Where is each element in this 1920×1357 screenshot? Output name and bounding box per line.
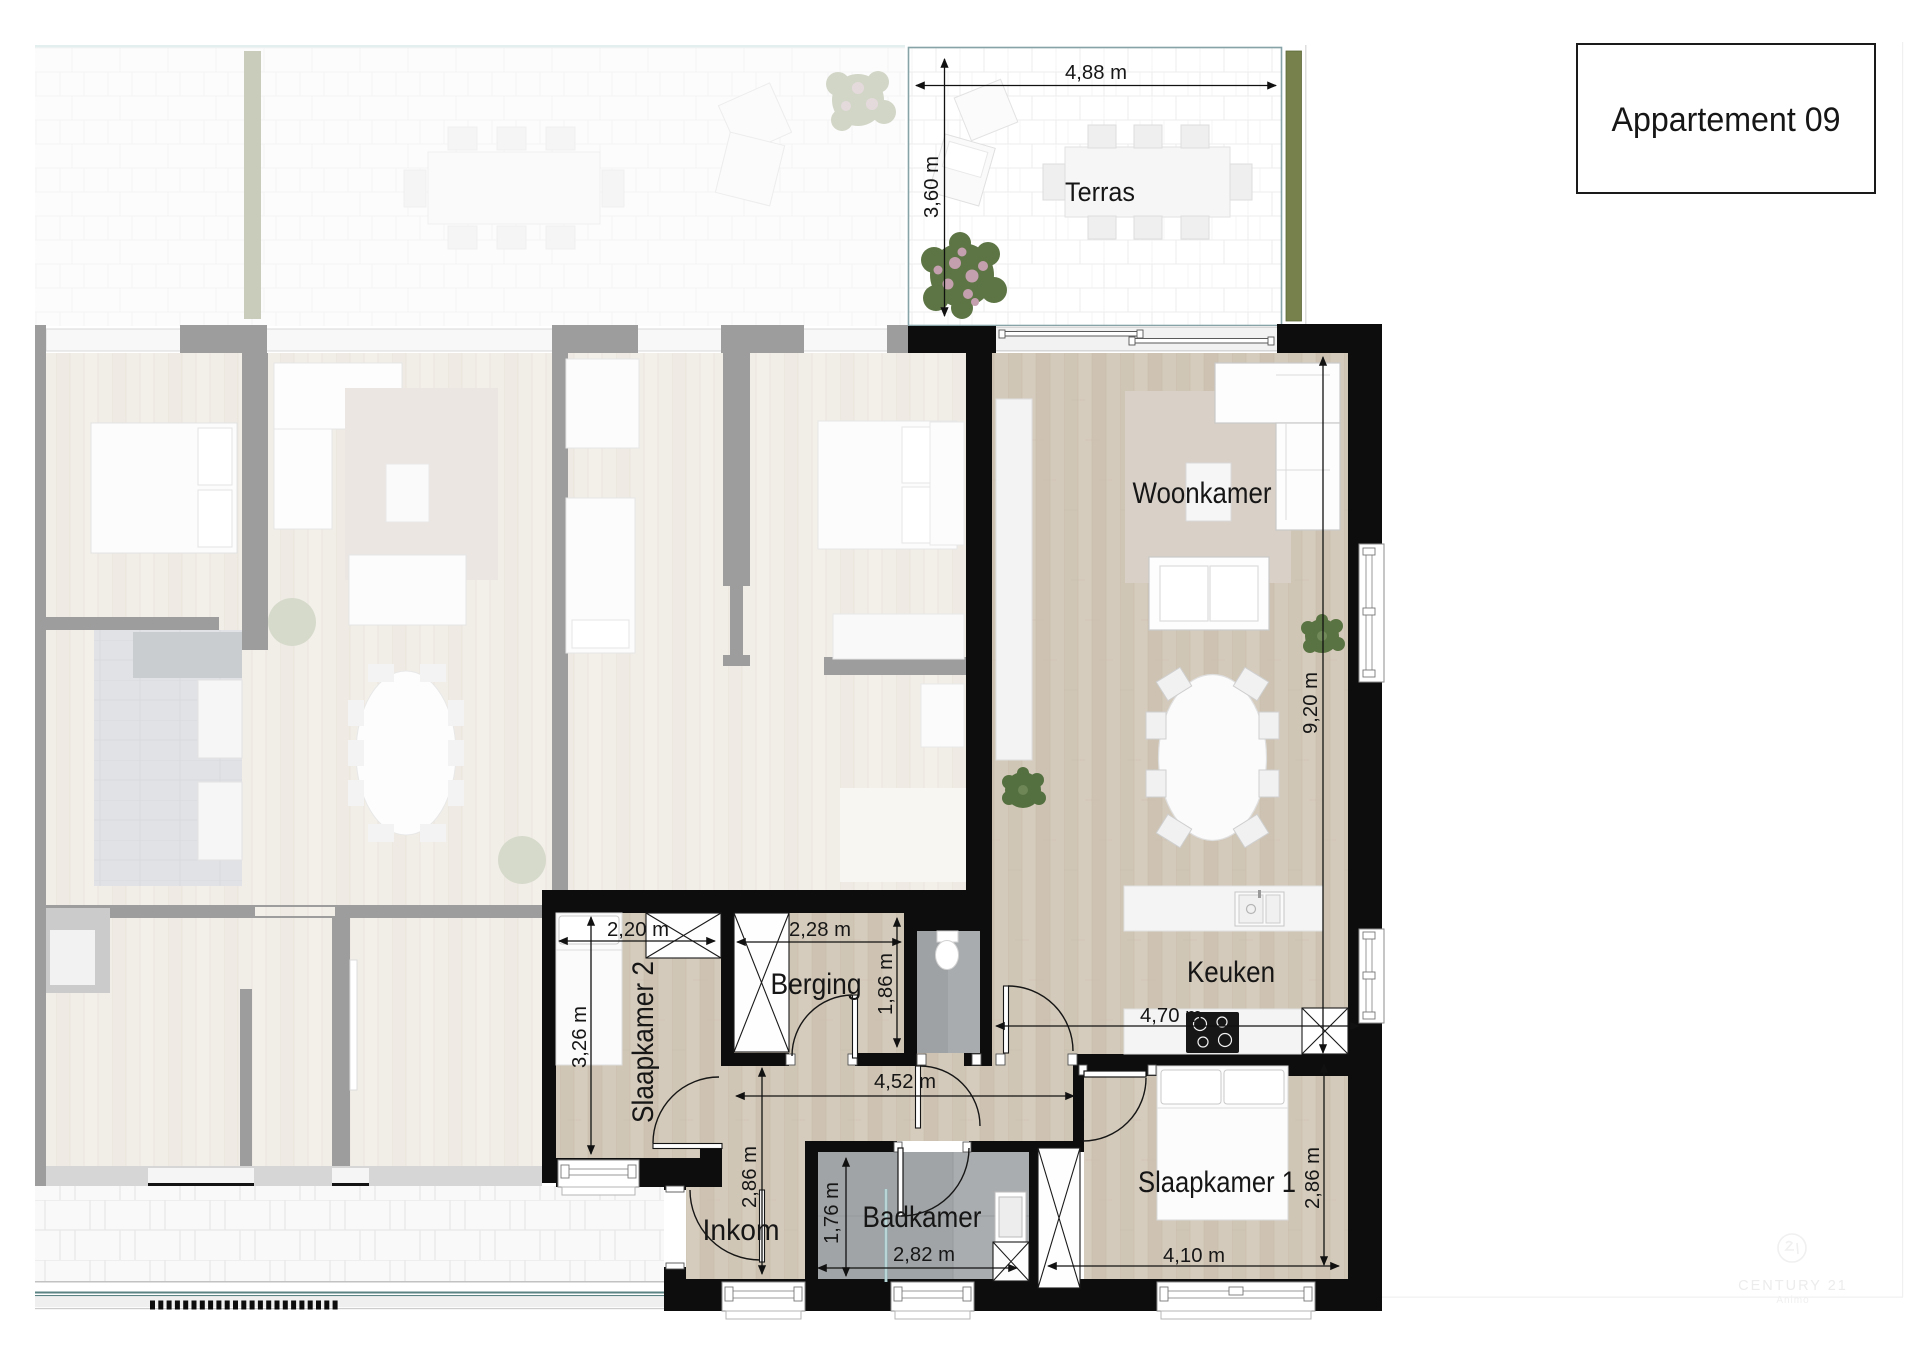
svg-text:2,86 m: 2,86 m bbox=[738, 1146, 761, 1208]
svg-text:3,26 m: 3,26 m bbox=[568, 1006, 591, 1068]
svg-text:Terras: Terras bbox=[1065, 177, 1135, 207]
svg-text:Woonkamer: Woonkamer bbox=[1133, 477, 1272, 510]
svg-text:1,86 m: 1,86 m bbox=[874, 953, 897, 1015]
svg-text:2,82 m: 2,82 m bbox=[893, 1243, 955, 1266]
svg-text:Keuken: Keuken bbox=[1187, 956, 1275, 989]
svg-text:Inkom: Inkom bbox=[703, 1214, 780, 1247]
svg-text:2,20 m: 2,20 m bbox=[607, 918, 669, 941]
svg-text:3,60 m: 3,60 m bbox=[920, 156, 943, 218]
svg-text:Animo: Animo bbox=[1776, 1295, 1809, 1306]
svg-text:2,86 m: 2,86 m bbox=[1301, 1147, 1324, 1209]
svg-text:CENTURY 21: CENTURY 21 bbox=[1738, 1278, 1848, 1294]
svg-text:9,20 m: 9,20 m bbox=[1299, 672, 1322, 734]
svg-text:Slaapkamer 2: Slaapkamer 2 bbox=[627, 961, 660, 1123]
svg-text:4,70 m: 4,70 m bbox=[1140, 1004, 1202, 1027]
svg-text:2,28 m: 2,28 m bbox=[789, 918, 851, 941]
svg-text:4,52 m: 4,52 m bbox=[874, 1070, 936, 1093]
svg-text:Berging: Berging bbox=[771, 968, 862, 1001]
svg-text:Appartement 09: Appartement 09 bbox=[1612, 101, 1841, 139]
svg-text:Slaapkamer 1: Slaapkamer 1 bbox=[1138, 1166, 1296, 1199]
svg-text:Badkamer: Badkamer bbox=[863, 1201, 982, 1234]
svg-text:1,76 m: 1,76 m bbox=[820, 1182, 843, 1244]
svg-text:4,10 m: 4,10 m bbox=[1163, 1244, 1225, 1267]
svg-text:4,88 m: 4,88 m bbox=[1065, 61, 1127, 84]
